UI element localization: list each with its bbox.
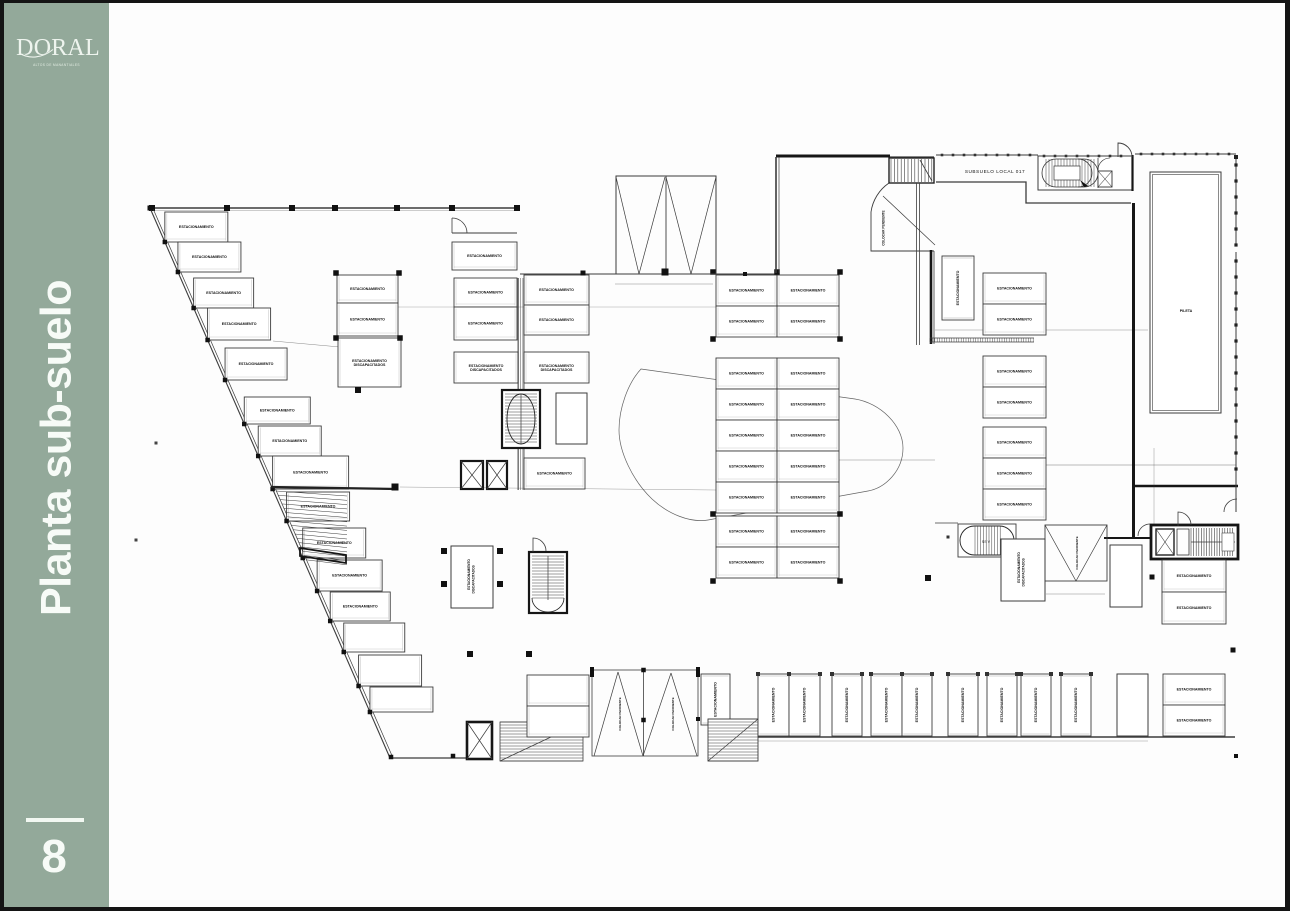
- svg-text:DISCAPACITADOS: DISCAPACITADOS: [541, 368, 573, 372]
- svg-text:DISCAPACITADOS: DISCAPACITADOS: [470, 368, 502, 372]
- svg-text:ESTACIONAMIENTO: ESTACIONAMIENTO: [1034, 687, 1038, 722]
- svg-text:DISCAPACITADOS: DISCAPACITADOS: [1022, 558, 1026, 586]
- svg-text:ESTACIONAMIENTO: ESTACIONAMIENTO: [1017, 552, 1021, 583]
- svg-text:ESTACIONAMIENTO: ESTACIONAMIENTO: [845, 687, 849, 722]
- svg-text:SS V: SS V: [982, 540, 991, 544]
- svg-text:ESTACIONAMIENTO: ESTACIONAMIENTO: [791, 561, 826, 565]
- svg-text:ESTACIONAMIENTO: ESTACIONAMIENTO: [729, 561, 764, 565]
- svg-text:ESTACIONAMIENTO: ESTACIONAMIENTO: [714, 682, 718, 717]
- svg-text:COLOCAR PENDIENTE: COLOCAR PENDIENTE: [618, 697, 622, 730]
- svg-text:ESTACIONAMIENTO: ESTACIONAMIENTO: [272, 439, 307, 443]
- svg-text:ESTACIONAMIENTO: ESTACIONAMIENTO: [997, 401, 1032, 405]
- svg-text:ESTACIONAMIENTO: ESTACIONAMIENTO: [729, 403, 764, 407]
- svg-text:ESTACIONAMIENTO: ESTACIONAMIENTO: [915, 687, 919, 722]
- svg-text:ESTACIONAMIENTO: ESTACIONAMIENTO: [1000, 687, 1004, 722]
- svg-text:ESTACIONAMIENTO: ESTACIONAMIENTO: [791, 289, 826, 293]
- svg-text:ESTACIONAMIENTO: ESTACIONAMIENTO: [1177, 574, 1212, 578]
- svg-text:ESTACIONAMIENTO: ESTACIONAMIENTO: [772, 687, 776, 722]
- svg-text:ESTACIONAMIENTO: ESTACIONAMIENTO: [791, 320, 826, 324]
- svg-text:ESTACIONAMIENTO: ESTACIONAMIENTO: [343, 605, 378, 609]
- svg-text:ESTACIONAMIENTO: ESTACIONAMIENTO: [997, 441, 1032, 445]
- svg-text:ESTACIONAMIENTO: ESTACIONAMIENTO: [1177, 606, 1212, 610]
- svg-text:ESTACIONAMIENTO: ESTACIONAMIENTO: [997, 472, 1032, 476]
- svg-text:ESTACIONAMIENTO: ESTACIONAMIENTO: [468, 291, 503, 295]
- svg-text:ESTACIONAMIENTO: ESTACIONAMIENTO: [997, 318, 1032, 322]
- svg-text:ESTACIONAMIENTO: ESTACIONAMIENTO: [791, 496, 826, 500]
- svg-text:ESTACIONAMIENTO: ESTACIONAMIENTO: [729, 372, 764, 376]
- svg-text:ESTACIONAMIENTO: ESTACIONAMIENTO: [997, 370, 1032, 374]
- svg-text:ESTACIONAMIENTO: ESTACIONAMIENTO: [1177, 688, 1212, 692]
- svg-text:ESTACIONAMIENTO: ESTACIONAMIENTO: [537, 472, 572, 476]
- svg-text:ESTACIONAMIENTO: ESTACIONAMIENTO: [729, 289, 764, 293]
- svg-text:ESTACIONAMIENTO: ESTACIONAMIENTO: [206, 291, 241, 295]
- svg-text:ESTACIONAMIENTO: ESTACIONAMIENTO: [729, 496, 764, 500]
- svg-text:PILETA: PILETA: [1180, 309, 1193, 313]
- svg-text:ESTACIONAMIENTO: ESTACIONAMIENTO: [997, 503, 1032, 507]
- svg-text:ESTACIONAMIENTO: ESTACIONAMIENTO: [1074, 687, 1078, 722]
- svg-text:ESTACIONAMIENTO: ESTACIONAMIENTO: [350, 287, 385, 291]
- svg-text:ESTACIONAMIENTO: ESTACIONAMIENTO: [222, 322, 257, 326]
- svg-text:SUBSUELO LOCAL 017: SUBSUELO LOCAL 017: [965, 169, 1025, 174]
- svg-text:ESTACIONAMIENTO: ESTACIONAMIENTO: [729, 434, 764, 438]
- svg-text:DISCAPACITADOS: DISCAPACITADOS: [354, 363, 386, 367]
- svg-text:ESTACIONAMIENTO: ESTACIONAMIENTO: [997, 287, 1032, 291]
- svg-text:ESTACIONAMIENTO: ESTACIONAMIENTO: [729, 320, 764, 324]
- svg-text:ESTACIONAMIENTO: ESTACIONAMIENTO: [467, 254, 502, 258]
- svg-text:ESTACIONAMIENTO: ESTACIONAMIENTO: [956, 270, 960, 305]
- svg-text:ESTACIONAMIENTO: ESTACIONAMIENTO: [791, 372, 826, 376]
- svg-text:ESTACIONAMIENTO: ESTACIONAMIENTO: [539, 288, 574, 292]
- svg-text:ESTACIONAMIENTO: ESTACIONAMIENTO: [239, 362, 274, 366]
- svg-text:ESTACIONAMIENTO: ESTACIONAMIENTO: [467, 559, 471, 590]
- svg-text:ESTACIONAMIENTO: ESTACIONAMIENTO: [332, 574, 367, 578]
- svg-text:COLOCAR PENDIENTE: COLOCAR PENDIENTE: [882, 210, 886, 245]
- svg-text:ESTACIONAMIENTO: ESTACIONAMIENTO: [729, 465, 764, 469]
- svg-text:ESTACIONAMIENTO: ESTACIONAMIENTO: [791, 530, 826, 534]
- svg-text:ESTACIONAMIENTO: ESTACIONAMIENTO: [179, 225, 214, 229]
- svg-text:ESTACIONAMIENTO: ESTACIONAMIENTO: [961, 687, 965, 722]
- svg-text:ESTACIONAMIENTO: ESTACIONAMIENTO: [885, 687, 889, 722]
- svg-text:COLOCAR PENDIENTE: COLOCAR PENDIENTE: [1075, 536, 1079, 569]
- svg-text:ESTACIONAMIENTO: ESTACIONAMIENTO: [260, 409, 295, 413]
- svg-text:DISCAPACITADOS: DISCAPACITADOS: [472, 565, 476, 593]
- svg-text:COLOCAR PENDIENTE: COLOCAR PENDIENTE: [671, 697, 675, 730]
- svg-text:ESTACIONAMIENTO: ESTACIONAMIENTO: [293, 471, 328, 475]
- svg-text:ESTACIONAMIENTO: ESTACIONAMIENTO: [192, 255, 227, 259]
- svg-text:ESTACIONAMIENTO: ESTACIONAMIENTO: [803, 687, 807, 722]
- svg-text:ESTACIONAMIENTO: ESTACIONAMIENTO: [791, 434, 826, 438]
- svg-text:ESTACIONAMIENTO: ESTACIONAMIENTO: [539, 318, 574, 322]
- svg-text:ESTACIONAMIENTO: ESTACIONAMIENTO: [791, 465, 826, 469]
- svg-text:ESTACIONAMIENTO: ESTACIONAMIENTO: [791, 403, 826, 407]
- svg-text:ESTACIONAMIENTO: ESTACIONAMIENTO: [729, 530, 764, 534]
- svg-text:ESTACIONAMIENTO: ESTACIONAMIENTO: [350, 318, 385, 322]
- svg-text:ESTACIONAMIENTO: ESTACIONAMIENTO: [1177, 719, 1212, 723]
- svg-text:ESTACIONAMIENTO: ESTACIONAMIENTO: [468, 322, 503, 326]
